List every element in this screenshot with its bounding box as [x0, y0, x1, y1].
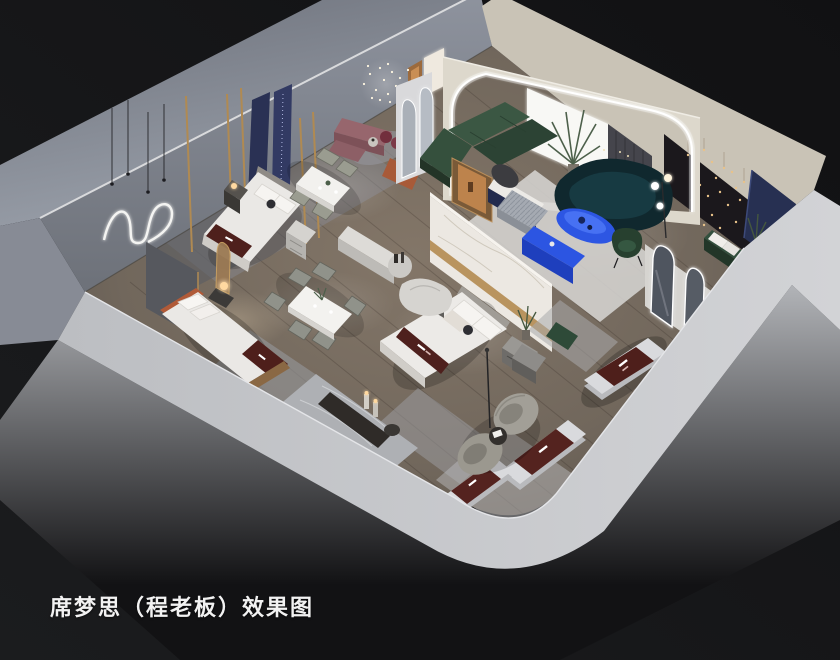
- pouf: [384, 424, 400, 436]
- pedestal-table: [388, 254, 412, 278]
- showroom-rendering: [0, 0, 840, 660]
- caption-title: 席梦思（程老板）效果图: [50, 590, 314, 622]
- rendering-canvas: 席梦思（程老板）效果图: [0, 0, 840, 660]
